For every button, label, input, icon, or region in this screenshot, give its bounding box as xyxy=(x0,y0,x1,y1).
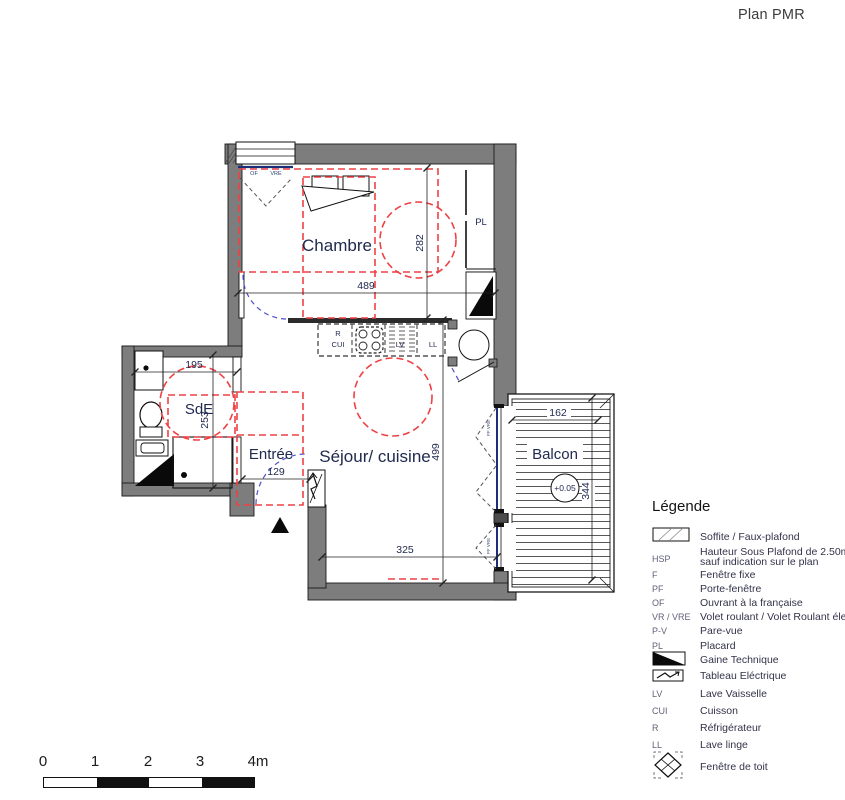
chambre-window xyxy=(236,142,295,206)
dim-chambre-width: 489 xyxy=(357,280,375,292)
legend-label: Cuisson xyxy=(700,705,738,717)
legend-label: Volet roulant / Volet Roulant électrique xyxy=(700,611,845,623)
legend-key: F xyxy=(652,570,658,580)
entrance-arrow xyxy=(271,517,289,533)
pf-label-upper: PF VRE xyxy=(486,420,491,436)
sde-fixtures xyxy=(135,351,232,488)
legend-label: Pare-vue xyxy=(700,625,743,637)
fenetre-de-toit-icon xyxy=(652,750,684,780)
legend-label: Hauteur Sous Plafond de 2.50m sauf indic… xyxy=(700,547,845,567)
legend-key: HSP xyxy=(652,554,671,564)
legend-label: Lave Vaisselle xyxy=(700,688,767,700)
page-title: Plan PMR xyxy=(738,7,805,23)
legend-key: CUI xyxy=(652,706,668,716)
legend-key: PF xyxy=(652,584,664,594)
balcony-doors xyxy=(476,404,516,571)
scale-tick-4: 4m xyxy=(248,753,269,770)
kitchen-label-cui: CUI xyxy=(332,340,345,349)
legend-label: Lave linge xyxy=(700,739,748,751)
scale-segment xyxy=(202,778,255,787)
legend-key: VR / VRE xyxy=(652,612,691,622)
scale-tick-2: 2 xyxy=(144,753,152,770)
legend-key: LL xyxy=(652,740,662,750)
gaine-technique-chambre xyxy=(466,272,496,319)
legend-key: PL xyxy=(652,641,663,651)
legend: Légende Soffite / Faux-plafond HSP Haute… xyxy=(650,498,845,798)
tableau-electrique-icon xyxy=(652,669,684,682)
legend-label: Ouvrant à la française xyxy=(700,597,803,609)
legend-key: P-V xyxy=(652,626,667,636)
placard-label: PL xyxy=(475,217,487,228)
scale-segment xyxy=(97,778,150,787)
room-label-chambre: Chambre xyxy=(302,236,372,255)
window-label-of: OF xyxy=(250,171,258,177)
legend-label: Placard xyxy=(700,640,736,652)
legend-key: OF xyxy=(652,598,665,608)
kitchen-label-ll: LL xyxy=(429,340,437,349)
room-label-sejour: Séjour/ cuisine xyxy=(319,447,431,466)
legend-title: Légende xyxy=(652,498,710,515)
pf-label-lower: PF VRE xyxy=(486,538,491,554)
kitchen-label-lv: LV xyxy=(396,340,405,349)
dim-sejour-width: 325 xyxy=(396,544,414,556)
bed xyxy=(302,176,374,211)
dim-sde-width: 195 xyxy=(185,359,203,371)
legend-label: Fenêtre de toit xyxy=(700,761,768,773)
scale-tick-0: 0 xyxy=(39,753,47,770)
legend-key: LV xyxy=(652,689,662,699)
scale-bar-segments xyxy=(43,777,255,788)
legend-label: Fenêtre fixe xyxy=(700,569,755,581)
soffite-icon xyxy=(652,527,690,542)
legend-label: Gaine Technique xyxy=(700,654,779,666)
room-label-entree: Entrée xyxy=(249,446,293,463)
gaine-technique-icon xyxy=(652,651,686,666)
scale-bar: 0 1 2 3 4m xyxy=(36,753,276,798)
floor-plan-page: Plan PMR xyxy=(0,0,845,800)
legend-label: Porte-fenêtre xyxy=(700,583,761,595)
dim-balcon-height: 344 xyxy=(580,482,592,500)
legend-key: R xyxy=(652,723,659,733)
window-label-vre: VRE xyxy=(270,171,282,177)
balcon-level: +0.05 xyxy=(554,483,576,493)
scale-tick-3: 3 xyxy=(196,753,204,770)
dim-chambre-height: 282 xyxy=(414,234,426,252)
dim-sejour-height: 499 xyxy=(430,443,442,461)
room-label-sde: SdE xyxy=(185,401,213,418)
scale-tick-1: 1 xyxy=(91,753,99,770)
balcony xyxy=(508,394,614,592)
legend-label-line2: sauf indication sur le plan xyxy=(700,557,845,567)
scale-segment xyxy=(149,778,202,787)
scale-segment xyxy=(44,778,97,787)
room-label-balcon: Balcon xyxy=(532,446,578,463)
legend-label: Réfrigérateur xyxy=(700,722,761,734)
kitchen-label-r: R xyxy=(335,329,341,338)
legend-label: Soffite / Faux-plafond xyxy=(700,531,800,543)
gaine-technique-sde xyxy=(135,454,174,486)
dim-balcon-width: 162 xyxy=(549,407,567,419)
dim-entree-width: 129 xyxy=(267,466,285,478)
legend-label: Tableau Eléctrique xyxy=(700,670,786,682)
